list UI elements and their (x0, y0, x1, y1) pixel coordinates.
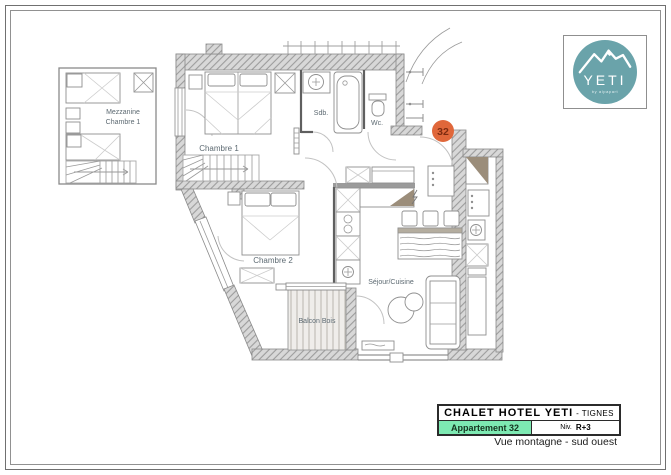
level-value: R+3 (576, 423, 591, 432)
level-cell: Niv. R+3 (532, 421, 619, 434)
storage-unit (428, 166, 454, 196)
chambre2-furniture (228, 191, 304, 290)
wardrobe (275, 73, 295, 93)
kitchen-counter-back (333, 183, 415, 188)
room-label-chambre1: Chambre 1 (199, 144, 239, 153)
room-label-chambre2: Chambre 2 (253, 256, 293, 265)
balcony (286, 283, 346, 350)
toilet (369, 94, 386, 116)
mezz-stairs (66, 161, 136, 183)
window-band (358, 353, 448, 362)
logo-box: YETI by alpapart (563, 35, 647, 109)
nightstand (228, 192, 240, 205)
chambre1-furniture (189, 72, 299, 154)
fridge (372, 167, 414, 183)
apartment-row: Appartement 32 Niv. R+3 (439, 421, 619, 434)
hotel-name: CHALET HOTEL YETI (444, 407, 573, 419)
logo-wordmark: YETI (573, 72, 637, 88)
oven (336, 212, 360, 236)
hotel-city: - TIGNES (576, 409, 614, 418)
mezz-wardrobe (134, 73, 153, 92)
chair (402, 211, 417, 226)
view-label: Vue montagne - sud ouest (437, 436, 617, 448)
logo-tagline: by alpapart (573, 89, 637, 94)
nightstand (189, 75, 202, 89)
washbasin (303, 72, 330, 93)
badge-number: 32 (437, 126, 449, 138)
living (358, 276, 460, 362)
corridor-fixtures (466, 157, 489, 335)
bench (240, 268, 274, 283)
apartment-cell: Appartement 32 (439, 421, 532, 434)
kitchen-cabinet-column (336, 188, 360, 284)
room-label-sdb: Sdb. (314, 110, 328, 117)
radiator (294, 128, 299, 154)
apartment-number-badge: 32 (432, 120, 454, 142)
sofa (426, 276, 460, 349)
room-label-mezzanine-2: Chambre 1 (106, 119, 141, 126)
room-label-wc: Wc. (371, 120, 383, 127)
mountain-icon (577, 47, 633, 74)
top-railing-ticks (283, 41, 400, 54)
exterior-sketch (406, 28, 462, 122)
page: Mezzanine Chambre 1 Chambre 1 Chambre 2 … (0, 0, 671, 475)
room-label-balcon: Balcon Bois (299, 318, 336, 325)
room-label-sejour: Séjour/Cuisine (368, 279, 414, 286)
room-label-mezzanine-1: Mezzanine (106, 109, 140, 116)
pouf (405, 293, 423, 311)
bathtub (334, 72, 362, 133)
logo-circle: YETI by alpapart (573, 40, 637, 104)
mezzanine-inset: Mezzanine Chambre 1 (59, 68, 156, 184)
chair (423, 211, 438, 226)
stairs-main (183, 155, 259, 181)
chair (444, 211, 459, 226)
tv-sideboard (362, 341, 394, 350)
level-label: Niv. (560, 424, 572, 431)
hotel-name-row: CHALET HOTEL YETI - TIGNES (439, 406, 619, 421)
title-block: CHALET HOTEL YETI - TIGNES Appartement 3… (437, 404, 621, 436)
